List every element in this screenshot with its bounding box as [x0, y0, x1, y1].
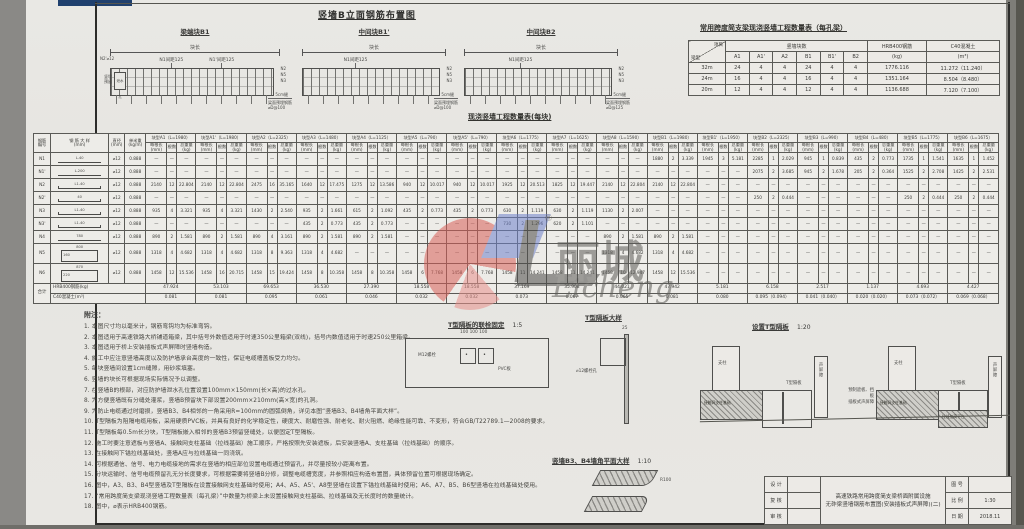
empty-cell: —	[979, 218, 999, 231]
qty-cell: 4	[267, 231, 277, 244]
empty-cell: —	[768, 179, 778, 192]
empty-cell: —	[277, 153, 296, 166]
empty-cell: —	[768, 218, 778, 231]
empty-cell: —	[718, 205, 728, 218]
empty-cell: —	[478, 218, 497, 231]
qty-cell: 2	[919, 166, 929, 179]
rebar-dia: ⌀12	[109, 244, 125, 264]
dimension-line	[110, 52, 280, 53]
qty-cell: 12	[468, 179, 478, 192]
rebar-shape-hook: L1-40	[55, 221, 104, 228]
group-header: 块型A6（L=1775）	[497, 134, 547, 143]
empty-cell: —	[929, 264, 948, 284]
sub-header: 总重量(kg)	[829, 143, 848, 153]
empty-cell: —	[747, 179, 768, 192]
block-count-cell: 4	[749, 74, 773, 85]
qty-cell: 435	[296, 218, 317, 231]
qty-cell: 630	[497, 205, 518, 218]
steel-total-cell: 18.558	[447, 284, 497, 294]
block-length-label: 块长	[298, 44, 450, 51]
empty-cell: —	[447, 218, 468, 231]
empty-cell: —	[167, 218, 177, 231]
sub-header: 总重量(kg)	[227, 143, 246, 153]
tfix-title-row: T型隔板的联栓固定 1:5	[448, 312, 522, 331]
block-count-cell: 4	[773, 74, 797, 85]
qty-cell: 890	[346, 231, 367, 244]
empty-cell: —	[819, 205, 829, 218]
qty-cell: 2	[468, 205, 478, 218]
review-signature	[788, 509, 821, 525]
qty-cell: 9.363	[277, 244, 296, 264]
empty-cell: —	[869, 205, 879, 218]
rebar-shape-line: L-200	[55, 169, 104, 176]
rebar-sketch: L-40	[51, 153, 109, 166]
rebar-sketch: L1-40	[51, 218, 109, 231]
empty-cell: —	[898, 218, 919, 231]
qty-cell: 4	[167, 205, 177, 218]
qty-cell: 12	[317, 179, 327, 192]
empty-cell: —	[819, 192, 829, 205]
empty-cell: —	[948, 179, 969, 192]
qty-cell: 2	[418, 205, 428, 218]
embedded-rebar-note: 梁面预埋钢筋⌀D@100	[434, 98, 458, 110]
tboard-right-label: T型隔板	[950, 380, 966, 386]
rebar-unit-weight: 0.888	[125, 192, 146, 205]
qty-cell: 1458	[547, 264, 568, 284]
qty-cell: 15	[267, 264, 277, 284]
steel-total-cell: 37.169	[497, 284, 547, 294]
empty-cell: —	[377, 192, 396, 205]
frame-top-line	[95, 3, 1010, 4]
empty-cell: —	[948, 218, 969, 231]
empty-cell: —	[217, 153, 227, 166]
rebar-row: N2 L1-40⌀120.88821401222.80421401222.804…	[34, 179, 999, 192]
empty-cell: —	[747, 244, 768, 264]
rebar-no: N4	[34, 231, 51, 244]
qty-cell: 1318	[296, 244, 317, 264]
empty-cell: —	[497, 244, 518, 264]
empty-cell: —	[819, 179, 829, 192]
sub-header: 根数	[418, 143, 428, 153]
dowel-bars	[308, 95, 434, 104]
empty-cell: —	[267, 153, 277, 166]
rebar-sketch: 800160	[51, 244, 109, 264]
scan-edge-left	[0, 0, 26, 529]
qty-cell: 1640	[296, 179, 317, 192]
embedded-rebar-note: 梁面预埋钢筋⌀D@125	[606, 98, 630, 110]
empty-cell: —	[497, 192, 518, 205]
empty-cell: —	[668, 205, 678, 218]
empty-cell: —	[797, 205, 818, 218]
steel-total-cell: 35.908	[547, 284, 597, 294]
empty-cell: —	[819, 218, 829, 231]
empty-cell: —	[628, 166, 647, 179]
qty-cell: 12	[518, 179, 528, 192]
sub-header: 总重量(kg)	[528, 143, 547, 153]
empty-cell: —	[568, 192, 578, 205]
empty-cell: —	[478, 244, 497, 264]
qty-cell: 12	[167, 264, 177, 284]
qty-cell: 1.581	[678, 231, 697, 244]
group-header: 块型B1（L=1980）	[647, 134, 697, 143]
empty-cell: —	[979, 264, 999, 284]
rebar-row: N6 870220⌀120.88814581215.53614581620.71…	[34, 264, 999, 284]
qty-cell: 3.161	[277, 231, 296, 244]
empty-cell: —	[478, 153, 497, 166]
empty-cell: —	[518, 244, 528, 264]
span-cell: 24m	[689, 74, 726, 85]
span-cell: 20m	[689, 85, 726, 96]
empty-cell: —	[969, 244, 979, 264]
concrete-total-cell: 0.081	[146, 294, 196, 304]
deck-note: 预制遮板、挡板 插板式声屏障	[844, 388, 874, 406]
qty-cell: 935	[146, 205, 167, 218]
rebar-shape-line: L-40	[55, 156, 104, 163]
empty-cell: —	[227, 153, 246, 166]
scan-edge-right	[1016, 0, 1024, 529]
concrete-total-cell: 0.020（0.020）	[848, 294, 898, 304]
qty-concrete-unit: (m³)	[927, 52, 1000, 63]
empty-cell: —	[979, 205, 999, 218]
qty-block-col: A1	[726, 52, 750, 63]
empty-cell: —	[246, 166, 267, 179]
empty-cell: —	[979, 244, 999, 264]
empty-cell: —	[879, 244, 898, 264]
empty-cell: —	[418, 192, 428, 205]
qty-cell: 1130	[597, 205, 618, 218]
check-signature	[788, 493, 821, 509]
empty-cell: —	[346, 166, 367, 179]
qty-table: 项目 梁型竖墙块数HRB400钢筋C40混凝土A1A1'A2B1B1'B2(kg…	[688, 40, 1000, 96]
tfix-bolt-hole-1	[460, 348, 476, 364]
dowel-bars	[116, 95, 268, 104]
rebar-dia: ⌀12	[109, 218, 125, 231]
steel-total-cell: 2.517	[797, 284, 847, 294]
qty-cell: 940	[396, 179, 417, 192]
elevation-panel: 中间块B1'块长N1间距125N2N5N35cm缝梁面预埋钢筋⌀D@100	[298, 26, 450, 110]
qty-cell: 1318	[146, 244, 167, 264]
group-header: 块型A1（L=1980）	[146, 134, 196, 143]
rebar-unit-weight: 0.888	[125, 218, 146, 231]
sub-header: 根数	[668, 143, 678, 153]
rebar-unit-weight: 0.888	[125, 205, 146, 218]
empty-cell: —	[829, 179, 848, 192]
empty-cell: —	[728, 166, 747, 179]
empty-cell: —	[578, 166, 597, 179]
embedded-rebar-note: 梁面预埋钢筋⌀D@100	[268, 98, 292, 110]
qty-cell: 4.682	[327, 244, 346, 264]
qty-block-col: A1'	[749, 52, 773, 63]
qty-data-row: 24m164416441351.1648.504（8.480）	[689, 74, 1000, 85]
sub-header: 每根长(mm)	[246, 143, 267, 153]
rebar-row: N1 L-40⌀120.888—————————————————————————…	[34, 153, 999, 166]
qty-cell: 1.541	[929, 153, 948, 166]
empty-cell: —	[678, 192, 697, 205]
steel-total-cell: 27.390	[346, 284, 396, 294]
empty-cell: —	[396, 244, 417, 264]
sub-header: 每根长(mm)	[547, 143, 568, 153]
qty-subheader-row: A1A1'A2B1B1'B2(kg)(m³)	[689, 52, 1000, 63]
concrete-total-cell: 0.067	[547, 294, 597, 304]
steel-total-cell: 47.924	[146, 284, 196, 294]
empty-cell: —	[819, 231, 829, 244]
steel-total-cell: 36.530	[296, 284, 346, 294]
design-label: 设 计	[765, 477, 788, 493]
empty-cell: —	[428, 231, 447, 244]
qty-cell: 35.165	[277, 179, 296, 192]
main-quantity-table: 钢筋编号钢 筋 大 样(mm)直径(mm)单米重(kg/m)块型A1（L=198…	[33, 133, 999, 304]
steel-cell: 1776.116	[868, 63, 927, 74]
barrier-right-label: 声屏障	[991, 362, 997, 378]
qty-cell: 10.017	[428, 179, 447, 192]
rebar-dia: ⌀12	[109, 192, 125, 205]
empty-cell: —	[196, 192, 217, 205]
qty-cell: 11	[518, 264, 528, 284]
empty-cell: —	[747, 218, 768, 231]
qty-cell: 1825	[547, 179, 568, 192]
qty-block-col: B1	[796, 52, 820, 63]
qty-cell: 890	[246, 231, 267, 244]
empty-cell: —	[267, 192, 277, 205]
qty-cell: 250	[747, 192, 768, 205]
empty-cell: —	[418, 218, 428, 231]
steel-total-cell: 69.653	[246, 284, 296, 294]
project-line1: 高速铁路常用跨度简支梁桥面附属设施	[821, 493, 945, 501]
review-label: 审 核	[765, 509, 788, 525]
dowel-bars	[470, 95, 606, 104]
rebar-shape-rect: 800160	[55, 245, 104, 262]
sub-header: 根数	[819, 143, 829, 153]
rebar-sketch: L1-40	[51, 205, 109, 218]
empty-cell: —	[618, 218, 628, 231]
empty-cell: —	[778, 231, 797, 244]
empty-cell: —	[177, 218, 196, 231]
qty-cell: 22.804	[177, 179, 196, 192]
rebar-dia: ⌀12	[109, 166, 125, 179]
steel-total-cell: 53.103	[196, 284, 246, 294]
empty-cell: —	[396, 153, 417, 166]
empty-cell: —	[718, 166, 728, 179]
empty-cell: —	[848, 218, 869, 231]
block-count-cell: 4	[749, 63, 773, 74]
empty-cell: —	[829, 192, 848, 205]
empty-cell: —	[217, 192, 227, 205]
empty-cell: —	[728, 231, 747, 244]
empty-cell: —	[167, 166, 177, 179]
qty-cell: 7.768	[478, 264, 497, 284]
qty-cell: 1.678	[829, 166, 848, 179]
empty-cell: —	[678, 166, 697, 179]
steel-total-cell: 44.021	[597, 284, 647, 294]
qty-cell: 945	[797, 153, 818, 166]
empty-cell: —	[697, 244, 718, 264]
empty-cell: —	[728, 218, 747, 231]
main-header-row: 钢筋编号钢 筋 大 样(mm)直径(mm)单米重(kg/m)块型A1（L=198…	[34, 134, 999, 143]
qty-cell: 0.773	[327, 218, 346, 231]
wall-label: 竖墙预留	[104, 74, 112, 84]
sub-header: 根数	[468, 143, 478, 153]
empty-cell: —	[768, 244, 778, 264]
empty-cell: —	[919, 244, 929, 264]
empty-cell: —	[167, 153, 177, 166]
empty-cell: —	[668, 192, 678, 205]
qty-cell: 10.358	[327, 264, 346, 284]
qty-cell: 22.804	[628, 179, 647, 192]
mast-left	[712, 346, 740, 392]
group-header: 块型A4（L=1125）	[346, 134, 396, 143]
empty-cell: —	[778, 244, 797, 264]
block-count-cell: 16	[796, 74, 820, 85]
empty-cell: —	[668, 166, 678, 179]
qty-cell: 2140	[146, 179, 167, 192]
empty-cell: —	[146, 192, 167, 205]
qty-cell: 1.119	[578, 205, 597, 218]
qty-cell: 0.364	[879, 166, 898, 179]
empty-cell: —	[969, 218, 979, 231]
empty-cell: —	[518, 231, 528, 244]
qty-concrete-header: C40混凝土	[927, 41, 1000, 52]
empty-cell: —	[568, 244, 578, 264]
qty-cell: 1430	[246, 205, 267, 218]
qty-cell: 250	[948, 192, 969, 205]
empty-cell: —	[346, 244, 367, 264]
qty-cell: 2	[518, 218, 528, 231]
rebar-no: N3'	[34, 218, 51, 231]
block-count-cell: 24	[726, 63, 750, 74]
qty-cell: 890	[296, 231, 317, 244]
empty-cell: —	[879, 205, 898, 218]
empty-cell: —	[518, 192, 528, 205]
lead-header: 钢筋编号	[34, 134, 51, 153]
qty-cell: 1458	[396, 264, 417, 284]
empty-cell: —	[367, 153, 377, 166]
qty-cell: 12	[217, 179, 227, 192]
rebar-grid	[110, 68, 274, 96]
empty-cell: —	[367, 192, 377, 205]
qty-cell: 1525	[898, 166, 919, 179]
empty-cell: —	[647, 205, 668, 218]
empty-cell: —	[367, 166, 377, 179]
qty-cell: 1458	[597, 264, 618, 284]
empty-cell: —	[568, 166, 578, 179]
empty-cell: —	[547, 244, 568, 264]
qty-cell: 1.581	[227, 231, 246, 244]
qty-cell: 1275	[346, 179, 367, 192]
empty-cell: —	[879, 218, 898, 231]
empty-cell: —	[869, 192, 879, 205]
empty-cell: —	[597, 218, 618, 231]
concrete-total-label: C40混凝土(m³)	[51, 294, 146, 304]
concrete-cell: 7.120（7.100）	[927, 85, 1000, 96]
empty-cell: —	[929, 179, 948, 192]
rebar-unit-weight: 0.888	[125, 166, 146, 179]
empty-cell: —	[317, 153, 327, 166]
qty-cell: 0.773	[478, 205, 497, 218]
rebar-row: N3 L1-40⌀120.88893543.32193543.321143022…	[34, 205, 999, 218]
qty-cell: 2140	[196, 179, 217, 192]
empty-cell: —	[428, 166, 447, 179]
empty-cell: —	[217, 218, 227, 231]
empty-cell: —	[697, 179, 718, 192]
block-count-cell: 4	[749, 85, 773, 96]
sub-header: 根数	[768, 143, 778, 153]
qty-cell: 2475	[246, 179, 267, 192]
qty-cell: 1318	[196, 244, 217, 264]
block-count-cell: 4	[773, 85, 797, 96]
note-item: 7. 在竖墙B的根部，对应防护墙泄水孔位置设置100mm×150mm(长×高)的…	[84, 386, 712, 397]
empty-cell: —	[829, 264, 848, 284]
qty-cell: 0.839	[829, 153, 848, 166]
qty-cell: 2	[668, 231, 678, 244]
empty-cell: —	[718, 244, 728, 264]
empty-cell: —	[929, 244, 948, 264]
qty-cell: 8	[267, 244, 277, 264]
qty-cell: 7.768	[428, 264, 447, 284]
span-cell: 32m	[689, 63, 726, 74]
qty-cell: 4	[618, 244, 628, 264]
rebar-no: N1	[34, 153, 51, 166]
bolt-dot-icon: •	[483, 352, 486, 358]
empty-cell: —	[447, 166, 468, 179]
qty-cell: 2.540	[277, 205, 296, 218]
qty-cell: 3	[718, 153, 728, 166]
rebar-unit-weight: 0.888	[125, 244, 146, 264]
group-header: 块型B6（L=1675）	[948, 134, 999, 143]
empty-cell: —	[948, 231, 969, 244]
tfix-bolt-label: M12螺栓	[418, 352, 436, 358]
qty-cell: 2	[768, 192, 778, 205]
concrete-total-cell: 0.069（0.068）	[948, 294, 999, 304]
group-header: 块型A2（L=2325）	[246, 134, 296, 143]
empty-cell: —	[447, 153, 468, 166]
qty-cell: 890	[146, 231, 167, 244]
empty-cell: —	[718, 218, 728, 231]
qty-cell: 2	[919, 192, 929, 205]
empty-cell: —	[969, 205, 979, 218]
lead-header: 直径(mm)	[109, 134, 125, 153]
qty-cell: 2140	[647, 179, 668, 192]
empty-cell: —	[578, 244, 597, 264]
sub-header: 根数	[969, 143, 979, 153]
drain-hole: 泄水孔	[114, 72, 126, 90]
empty-cell: —	[396, 192, 417, 205]
qty-cell: 10	[618, 264, 628, 284]
empty-cell: —	[919, 218, 929, 231]
scale-value: 1:30	[969, 493, 1012, 509]
qty-steel-header: HRB400钢筋	[868, 41, 927, 52]
qty-cell: 20.715	[227, 264, 246, 284]
sub-header: 总重量(kg)	[478, 143, 497, 153]
sub-header: 总重量(kg)	[428, 143, 447, 153]
empty-cell: —	[377, 166, 396, 179]
empty-cell: —	[848, 264, 869, 284]
qty-cell: 2.029	[778, 153, 797, 166]
project-line2: 无砟梁竖墙钢筋布置图(安装插板式声屏障)(二)	[821, 501, 945, 509]
qty-cell: 1945	[697, 153, 718, 166]
empty-cell: —	[396, 166, 417, 179]
qty-cell: 2	[969, 166, 979, 179]
empty-cell: —	[829, 231, 848, 244]
empty-cell: —	[697, 166, 718, 179]
empty-cell: —	[428, 244, 447, 264]
design-signature	[788, 477, 821, 493]
concrete-total-cell: 0.061	[296, 294, 346, 304]
empty-cell: —	[919, 179, 929, 192]
empty-cell: —	[146, 218, 167, 231]
concrete-total-cell: 0.080	[697, 294, 747, 304]
qty-cell: 14.241	[528, 264, 547, 284]
group-header: 块型A3（L=1480）	[296, 134, 346, 143]
